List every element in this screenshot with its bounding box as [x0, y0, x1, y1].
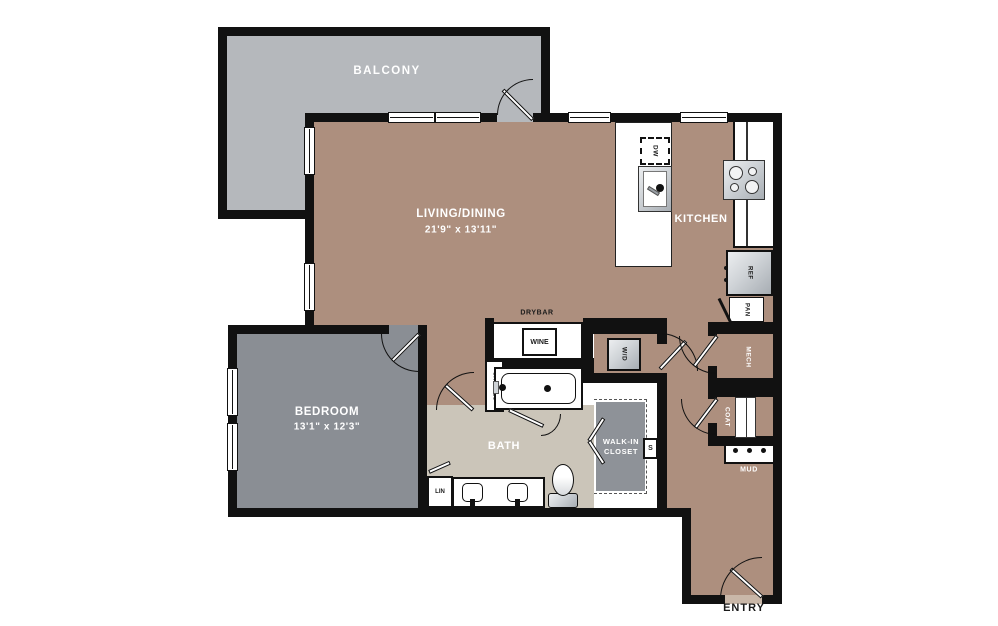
vanity-sink-faucet [470, 499, 475, 506]
burner [745, 180, 759, 194]
wall-right [773, 113, 782, 604]
wall-mech-coat-divider [708, 378, 773, 397]
window [227, 368, 238, 416]
living-dining-label: LIVING/DINING [416, 208, 506, 220]
mech-label: MECH [745, 346, 752, 367]
dishwasher: DW [640, 137, 670, 165]
balcony-label: BALCONY [353, 65, 420, 77]
coat-hook [761, 448, 766, 453]
window [680, 112, 728, 123]
burner [748, 167, 757, 176]
wall-closet-top [585, 373, 667, 383]
washer-dryer: W/D [607, 338, 641, 371]
walkin-closet-label: WALK-IN CLOSET [603, 437, 639, 457]
island-sink [638, 166, 672, 212]
window [304, 127, 315, 175]
coat-hook [733, 448, 738, 453]
door-opening-bedroom [389, 325, 418, 334]
window [435, 112, 481, 123]
washer-dryer-label: W/D [621, 347, 628, 361]
window [227, 423, 238, 471]
window [568, 112, 611, 123]
linen-label: LIN [435, 489, 445, 495]
bedroom-label: BEDROOM [295, 406, 359, 418]
burner [729, 166, 743, 180]
closet-shelf-label: S [648, 445, 653, 452]
vanity [452, 477, 545, 508]
window [388, 112, 435, 123]
burner [730, 183, 739, 192]
closet-shelf-s: S [643, 438, 658, 459]
wall-bedroom-left [228, 325, 237, 517]
living-floor [314, 122, 773, 334]
bathtub-faucet [499, 384, 506, 391]
wine-fridge: WINE [522, 328, 557, 356]
wall-closet-right [657, 383, 667, 508]
coat-hook [747, 448, 752, 453]
coat-rod [735, 397, 756, 438]
bath-label: BATH [488, 440, 520, 452]
toilet-bowl [552, 464, 574, 496]
bedroom-dims: 13'1" x 12'3" [294, 422, 361, 433]
coat-label: COAT [724, 407, 731, 427]
mud-label: MUD [740, 467, 758, 474]
entry-label: ENTRY [723, 602, 765, 614]
kitchen-label: KITCHEN [674, 213, 727, 225]
vanity-sink-faucet [515, 499, 520, 506]
floor-plan: DW REF PAN WINE SHELVES W/D LIN [0, 0, 998, 626]
pantry: PAN [729, 297, 764, 322]
wall-bedroom-right [418, 325, 427, 517]
living-dining-dims: 21'9" x 13'11" [425, 225, 497, 236]
wine-label: WINE [530, 339, 548, 346]
cooktop [723, 160, 765, 200]
wall-corridor-left [682, 517, 691, 604]
bathtub-inner [501, 373, 576, 404]
coat-rod-line [746, 398, 748, 437]
ref-hinge [724, 278, 728, 282]
wall-mech-top [708, 322, 773, 334]
bathtub [494, 367, 583, 410]
walkin-closet-line2: CLOSET [603, 447, 639, 457]
bathtub-drain [544, 385, 551, 392]
ref-hinge [724, 266, 728, 270]
pantry-label: PAN [744, 303, 750, 317]
refrigerator: REF [726, 250, 773, 296]
linen-closet: LIN [427, 476, 453, 508]
bathtub-faucet-handle [493, 381, 499, 394]
window [304, 263, 315, 311]
refrigerator-label: REF [747, 266, 753, 280]
drybar-label: DRYBAR [520, 310, 553, 317]
dishwasher-label: DW [652, 145, 659, 157]
wall-living-south [583, 318, 667, 334]
walkin-closet-line1: WALK-IN [603, 437, 639, 447]
mud-bench [724, 444, 773, 464]
wall-bottom [228, 508, 691, 517]
